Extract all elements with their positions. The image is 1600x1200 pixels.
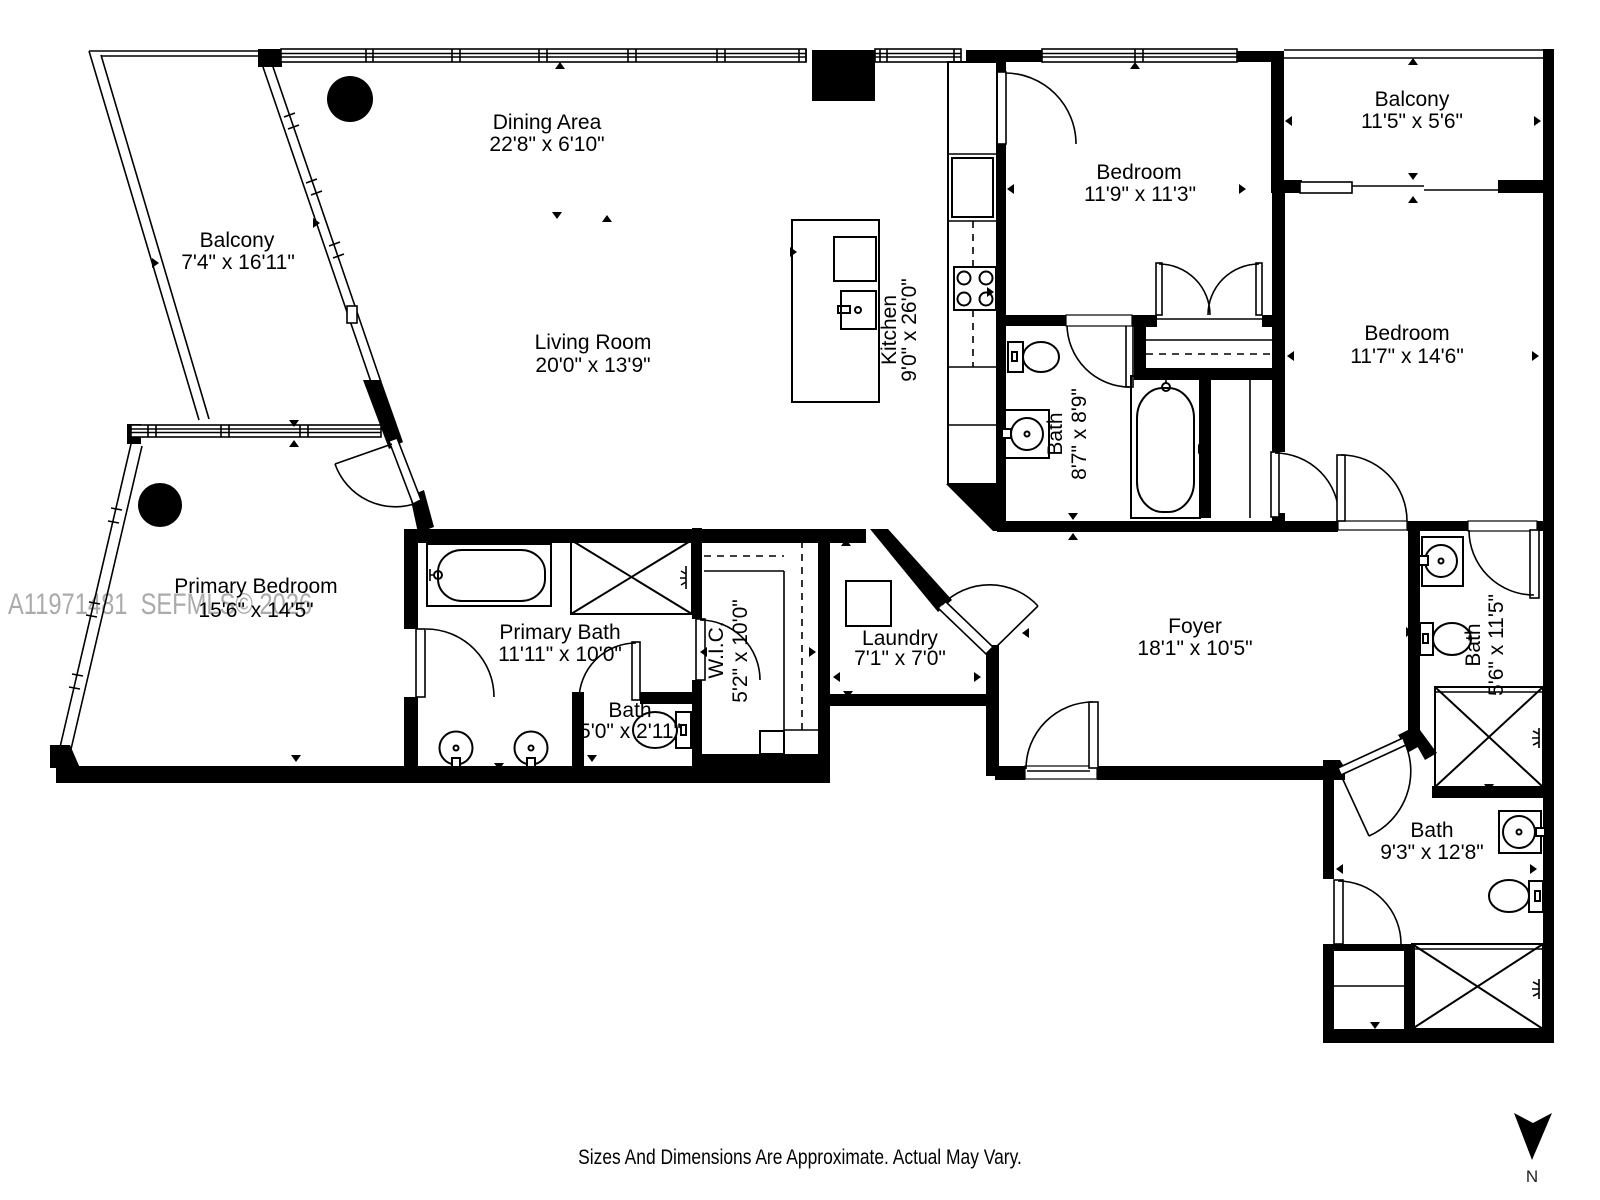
svg-text:9'3" x 12'8": 9'3" x 12'8" <box>1380 841 1484 864</box>
svg-text:Balcony: Balcony <box>200 229 275 252</box>
svg-text:Bedroom: Bedroom <box>1364 322 1449 345</box>
svg-text:18'1" x 10'5": 18'1" x 10'5" <box>1137 637 1252 660</box>
svg-text:22'8" x 6'10": 22'8" x 6'10" <box>489 133 604 156</box>
svg-text:8'7" x 8'9": 8'7" x 8'9" <box>1068 388 1091 480</box>
svg-text:Primary Bedroom: Primary Bedroom <box>174 575 337 598</box>
svg-text:Living Room: Living Room <box>535 331 652 354</box>
svg-text:11'7" x 14'6": 11'7" x 14'6" <box>1350 345 1464 368</box>
svg-text:Bath: Bath <box>1044 412 1067 455</box>
svg-text:7'4" x 16'11": 7'4" x 16'11" <box>181 251 295 274</box>
svg-text:N: N <box>1526 1167 1538 1186</box>
svg-text:20'0" x 13'9": 20'0" x 13'9" <box>535 354 650 377</box>
svg-text:Dining Area: Dining Area <box>493 111 602 134</box>
svg-text:15'6" x 14'5": 15'6" x 14'5" <box>198 599 313 622</box>
svg-text:5'0" x 2'11": 5'0" x 2'11" <box>579 720 681 743</box>
svg-text:Foyer: Foyer <box>1168 615 1222 638</box>
svg-text:Bath: Bath <box>1462 623 1485 666</box>
svg-text:Primary Bath: Primary Bath <box>499 621 620 644</box>
svg-text:W.I.C.: W.I.C. <box>705 621 728 678</box>
svg-text:11'11" x 10'0": 11'11" x 10'0" <box>498 643 622 666</box>
svg-text:7'1" x 7'0": 7'1" x 7'0" <box>854 647 946 670</box>
svg-text:5'2" x 10'0": 5'2" x 10'0" <box>729 599 752 703</box>
svg-text:Sizes And Dimensions Are Appro: Sizes And Dimensions Are Approximate. Ac… <box>578 1147 1022 1170</box>
svg-text:Bedroom: Bedroom <box>1096 161 1181 184</box>
svg-text:9'0" x 26'0": 9'0" x 26'0" <box>898 278 921 382</box>
svg-text:11'5" x 5'6": 11'5" x 5'6" <box>1361 110 1463 133</box>
svg-text:5'6" x 11'5": 5'6" x 11'5" <box>1485 594 1508 696</box>
svg-text:11'9" x 11'3": 11'9" x 11'3" <box>1084 183 1196 206</box>
svg-text:Bath: Bath <box>1410 819 1453 842</box>
svg-text:Bath: Bath <box>608 699 651 722</box>
svg-text:Balcony: Balcony <box>1375 88 1450 111</box>
